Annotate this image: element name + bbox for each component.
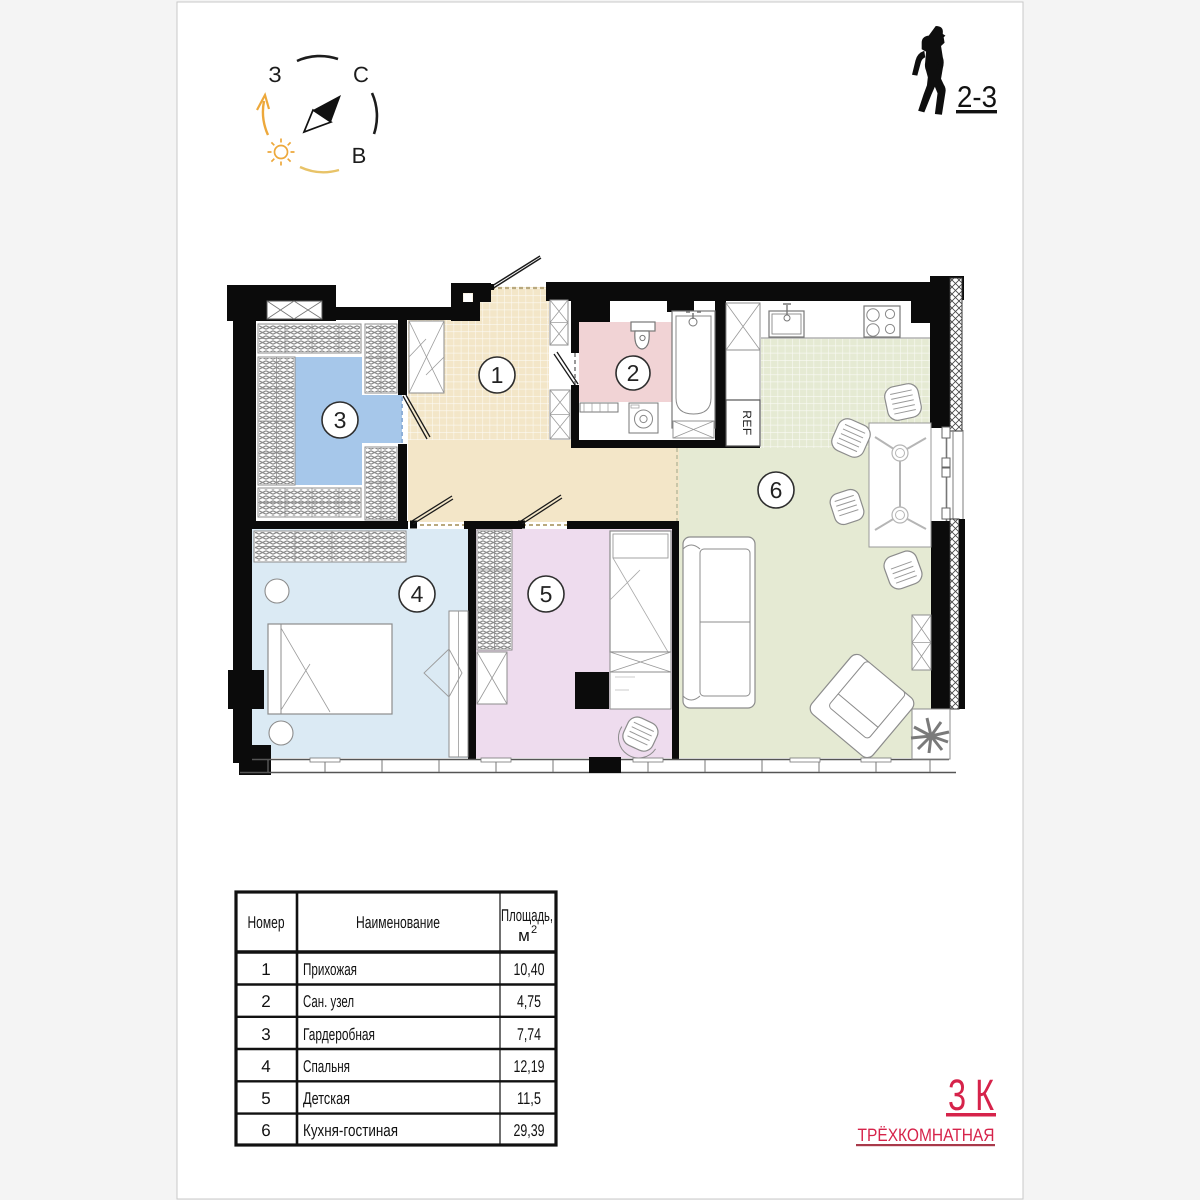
svg-text:ТРЁХКОМНАТНАЯ: ТРЁХКОМНАТНАЯ — [858, 1125, 995, 1145]
svg-text:4,75: 4,75 — [517, 992, 541, 1011]
svg-text:Наименование: Наименование — [356, 913, 440, 932]
svg-text:5: 5 — [540, 581, 553, 607]
svg-text:Номер: Номер — [248, 913, 285, 932]
svg-text:1: 1 — [261, 960, 270, 979]
svg-text:Гардеробная: Гардеробная — [303, 1025, 375, 1044]
svg-text:2: 2 — [261, 992, 270, 1011]
svg-text:2: 2 — [627, 360, 640, 386]
svg-text:29,39: 29,39 — [514, 1121, 545, 1140]
svg-text:4: 4 — [261, 1057, 270, 1076]
svg-text:3: 3 — [334, 407, 347, 433]
svg-text:С: С — [353, 62, 369, 87]
svg-text:Площадь,: Площадь, — [501, 906, 553, 925]
svg-text:Прихожая: Прихожая — [303, 960, 357, 979]
svg-text:З: З — [268, 62, 281, 87]
svg-text:В: В — [352, 143, 367, 168]
svg-text:12,19: 12,19 — [514, 1057, 545, 1076]
svg-text:6: 6 — [261, 1121, 270, 1140]
svg-text:5: 5 — [261, 1089, 270, 1108]
svg-text:11,5: 11,5 — [517, 1089, 541, 1108]
svg-text:Спальня: Спальня — [303, 1057, 350, 1076]
svg-text:2-3: 2-3 — [957, 81, 997, 114]
svg-text:REF: REF — [740, 410, 754, 436]
svg-text:Кухня-гостиная: Кухня-гостиная — [303, 1121, 398, 1140]
svg-text:1: 1 — [491, 362, 504, 388]
svg-text:4: 4 — [411, 581, 424, 607]
svg-text:2: 2 — [531, 924, 537, 936]
svg-text:Сан. узел: Сан. узел — [303, 992, 354, 1011]
svg-text:7,74: 7,74 — [517, 1025, 541, 1044]
svg-text:6: 6 — [770, 477, 783, 503]
svg-text:м: м — [518, 926, 530, 945]
svg-text:3: 3 — [261, 1025, 270, 1044]
svg-text:10,40: 10,40 — [514, 960, 545, 979]
svg-text:Детская: Детская — [303, 1089, 350, 1108]
svg-text:3 К: 3 К — [948, 1071, 994, 1120]
